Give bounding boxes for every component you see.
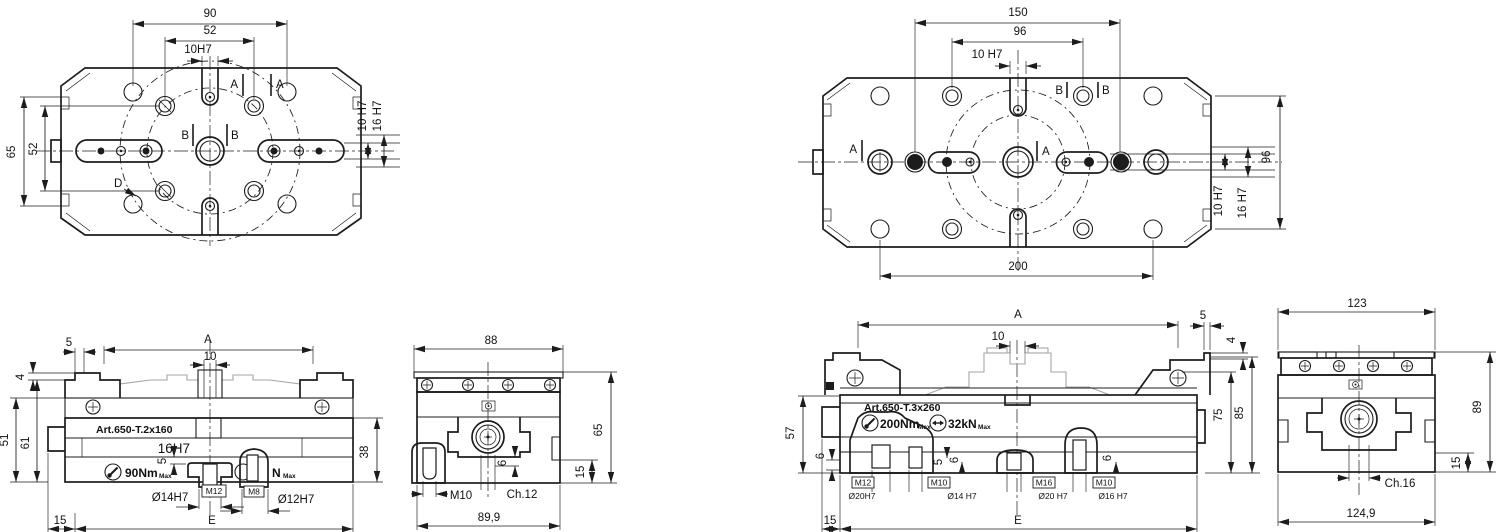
section-label-a2: A (276, 79, 284, 91)
dim-38: 38 (359, 446, 371, 459)
view-side-small: 88 M10 6 Ch.12 89,9 65 15 (395, 300, 640, 532)
clamp-blocks (65, 370, 353, 418)
logo-icon (1349, 380, 1362, 389)
dim-5-top: 5 (1200, 310, 1206, 322)
force-partial-value: N (272, 466, 281, 480)
dim-10h7-top: 10 H7 (972, 49, 1003, 61)
dim-65: 65 (6, 146, 18, 159)
centerlines (798, 50, 1282, 274)
thread-m12: M12 (855, 478, 872, 488)
view-top-plan-small: A A B B D 90 52 10H7 65 52 10 H7 16 H7 (0, 0, 430, 300)
force-max: Max (978, 424, 991, 431)
dim-16h7-side: 16 H7 (372, 101, 384, 132)
dimensions: 123 89 15 Ch.16 124,9 (1278, 298, 1496, 526)
jaw-blocks (825, 353, 1210, 395)
dim-899: 89,9 (478, 512, 500, 524)
dim-16h7-side: 16 H7 (1237, 188, 1249, 219)
torque-icon (105, 464, 121, 480)
thread-m10: M10 (450, 490, 472, 502)
dim-90: 90 (204, 8, 217, 20)
dim-65: 65 (593, 424, 605, 437)
dim-52-top: 52 (204, 25, 217, 37)
section-marks: A A B B D (114, 74, 284, 196)
dim-6-mid: 6 (949, 457, 961, 463)
dim-5-top: 5 (66, 337, 72, 349)
section-label-b2: B (231, 130, 239, 142)
dim-15: 15 (575, 466, 587, 479)
dim-75: 75 (1213, 409, 1225, 422)
dim-85: 85 (1234, 407, 1246, 420)
dim-200: 200 (1008, 261, 1027, 273)
dim-e: E (1014, 515, 1022, 527)
dim-57: 57 (785, 427, 797, 440)
dim-123: 123 (1347, 298, 1366, 310)
thread-m8: M8 (248, 487, 260, 497)
thread-m10-a: M10 (931, 478, 948, 488)
dim-6-left: 6 (815, 453, 827, 459)
dim-10: 10 (204, 351, 217, 363)
stud-labels: M12 M8 Ø14H7 Ø12H7 (152, 485, 314, 514)
view-front-small: Art.650-T.2x160 16H7 90Nm Max N Max M12 … (0, 300, 400, 532)
thread-m12: M12 (206, 486, 223, 496)
force-partial-max: Max (283, 473, 296, 480)
dim-d12h7: Ø12H7 (278, 494, 314, 506)
dim-e: E (208, 515, 216, 527)
body (1278, 375, 1435, 472)
dim-d14h7: Ø14H7 (152, 492, 188, 504)
view-top-plan-large: A A B B 150 96 10 H7 200 96 10 H7 16 H7 (770, 0, 1310, 300)
section-label-b1: B (1055, 85, 1063, 97)
logo-icon (482, 401, 495, 411)
force-value: 32kN (948, 417, 977, 431)
section-label-a1: A (230, 79, 238, 91)
dim-10h7-side: 10 H7 (1213, 186, 1225, 217)
torque-value: 200Nm (880, 417, 919, 431)
dim-61: 61 (20, 437, 32, 450)
dimensions: 88 M10 6 Ch.12 89,9 65 15 (411, 335, 617, 530)
dim-88: 88 (485, 335, 498, 347)
dim-d16h7: Ø16 H7 (1098, 491, 1128, 501)
dim-4: 4 (1226, 336, 1238, 343)
torque-value: 90Nm (125, 466, 158, 480)
dim-4: 4 (15, 373, 27, 380)
dim-15: 15 (1451, 457, 1463, 470)
stud-labels: M12 Ø20H7 M10 Ø14 H7 M16 Ø20 H7 M10 Ø16 … (849, 470, 1128, 501)
dim-51: 51 (0, 434, 11, 447)
dim-10: 10 (992, 331, 1005, 343)
view-side-large: 123 89 15 Ch.16 124,9 (1266, 295, 1500, 532)
dim-10h7-side: 10 H7 (357, 101, 369, 132)
dimensions: 90 52 10H7 65 52 10 H7 16 H7 (6, 8, 400, 206)
dim-d20h7-b: Ø20 H7 (1038, 491, 1068, 501)
section-label-b1: B (181, 130, 189, 142)
dim-15: 15 (824, 515, 837, 527)
dim-150: 150 (1008, 7, 1027, 19)
view-front-large: Art.650-T.3x260 200Nm Max 32kN Max M12 Ø… (770, 300, 1270, 532)
dim-6: 6 (497, 460, 509, 466)
dim-1249: 124,9 (1347, 508, 1376, 520)
section-label-a2: A (1042, 146, 1050, 158)
top-plate (1278, 352, 1435, 375)
dim-89: 89 (1472, 401, 1484, 414)
dim-96-side: 96 (1261, 151, 1273, 164)
dimensions: 5 5 A 10 4 51 61 38 15 E (0, 334, 383, 532)
dim-5-mid: 5 (933, 459, 945, 465)
dim-a: A (1014, 309, 1022, 321)
dim-ch16: Ch.16 (1385, 478, 1416, 490)
dim-52-left: 52 (28, 143, 40, 156)
section-label-b2: B (1102, 85, 1110, 97)
body-outline (51, 68, 361, 235)
base-body (48, 418, 353, 482)
detail-label-d: D (114, 178, 122, 190)
clamp-force-icon (930, 415, 946, 431)
dim-d20h7: Ø20H7 (849, 491, 876, 501)
dim-10h7-top: 10H7 (184, 44, 212, 56)
thread-m10-b: M10 (1096, 478, 1113, 488)
centerlines (36, 56, 394, 246)
dim-6-right: 6 (1102, 455, 1114, 461)
thread-m16: M16 (1036, 478, 1053, 488)
top-plate (414, 372, 563, 392)
body-outline (813, 78, 1211, 247)
dim-d14h7: Ø14 H7 (947, 491, 977, 501)
section-label-a1: A (849, 144, 857, 156)
torque-max: Max (159, 473, 172, 480)
dim-ch12: Ch.12 (507, 489, 538, 501)
dim-a: A (204, 334, 212, 346)
dim-96-top: 96 (1014, 26, 1027, 38)
dim-15: 15 (54, 515, 67, 527)
part-number: Art.650-T.2x160 (96, 424, 173, 436)
dimensions: 150 96 10 H7 200 96 10 H7 16 H7 (880, 7, 1286, 280)
drawing-canvas: A A B B D 90 52 10H7 65 52 10 H7 16 H7 (0, 0, 1500, 532)
torque-icon (862, 415, 878, 431)
dim-5-stud: 5 (157, 458, 169, 464)
